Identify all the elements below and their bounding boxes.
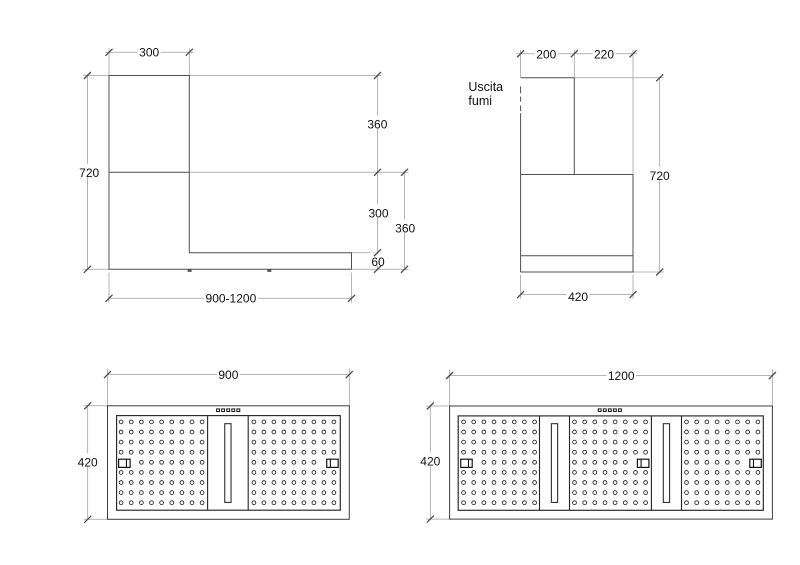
svg-text:200: 200 <box>536 47 556 61</box>
svg-text:1200: 1200 <box>608 369 635 383</box>
svg-text:Uscita: Uscita <box>468 80 503 94</box>
svg-text:720: 720 <box>79 166 99 180</box>
svg-text:fumi: fumi <box>468 94 492 108</box>
svg-text:720: 720 <box>650 169 670 183</box>
svg-text:220: 220 <box>594 47 614 61</box>
svg-text:360: 360 <box>367 118 387 132</box>
svg-text:300: 300 <box>139 46 159 60</box>
svg-text:360: 360 <box>395 222 415 236</box>
svg-text:420: 420 <box>78 456 98 470</box>
svg-text:60: 60 <box>371 255 385 269</box>
svg-text:900: 900 <box>218 368 238 382</box>
svg-text:900-1200: 900-1200 <box>206 292 257 306</box>
svg-text:300: 300 <box>368 206 388 220</box>
svg-text:420: 420 <box>568 290 588 304</box>
svg-text:420: 420 <box>420 455 440 469</box>
